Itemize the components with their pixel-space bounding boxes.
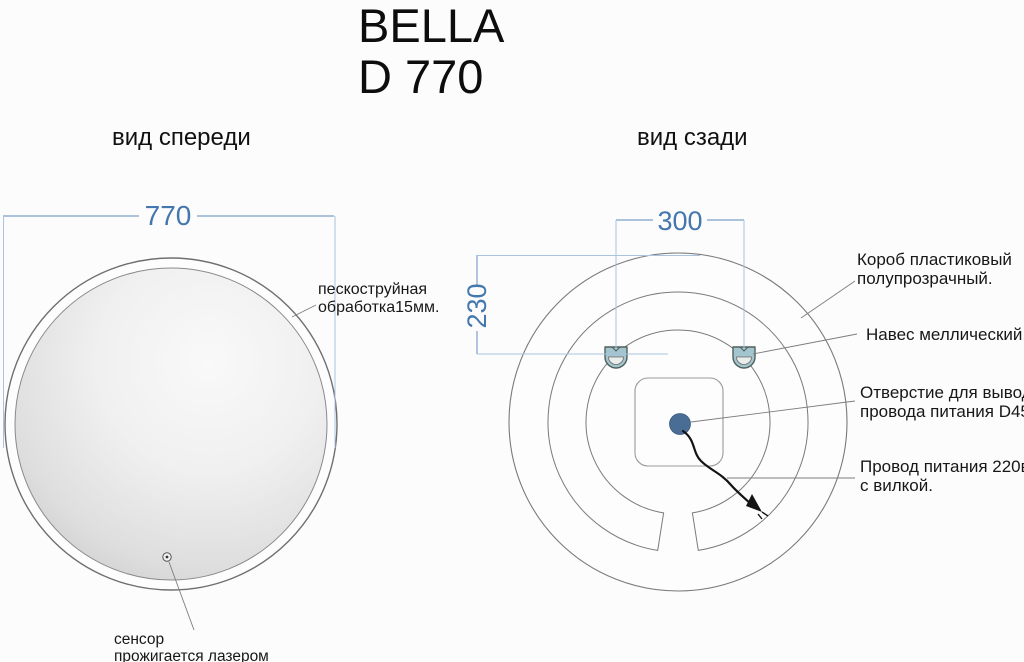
dimension-230-value: 230 bbox=[462, 274, 492, 338]
box-annotation: Короб пластиковый полупрозрачный. bbox=[857, 250, 1012, 288]
back-view-label: вид сзади bbox=[637, 124, 748, 152]
power-cord-annotation: Провод питания 220в. с вилкой. bbox=[860, 457, 1024, 495]
sandblast-note: пескоструйная обработка15мм. bbox=[318, 281, 439, 317]
product-title-model: D 770 bbox=[358, 51, 504, 102]
product-title-name: BELLA bbox=[358, 0, 504, 51]
cord-hole bbox=[670, 414, 691, 435]
cord-hole-annotation: Отверстие для вывода провода питания D45 bbox=[860, 383, 1024, 421]
sandblast-leader-line bbox=[292, 305, 316, 317]
front-view-label: вид спереди bbox=[112, 124, 251, 152]
product-title: BELLA D 770 bbox=[358, 0, 504, 102]
mirror-sandblast-border bbox=[15, 268, 327, 580]
hanger-annotation: Навес меллический. bbox=[866, 325, 1024, 344]
sensor-mark bbox=[163, 553, 171, 561]
hanger-right bbox=[733, 347, 755, 368]
hanger-left bbox=[605, 347, 627, 368]
dimension-770-value: 770 bbox=[138, 200, 198, 232]
technical-drawing-sheet: BELLA D 770 вид спереди вид сзади 770 30… bbox=[0, 0, 1024, 662]
dimension-300-value: 300 bbox=[652, 206, 708, 237]
sensor-note: сенсор прожигается лазером bbox=[114, 631, 269, 662]
